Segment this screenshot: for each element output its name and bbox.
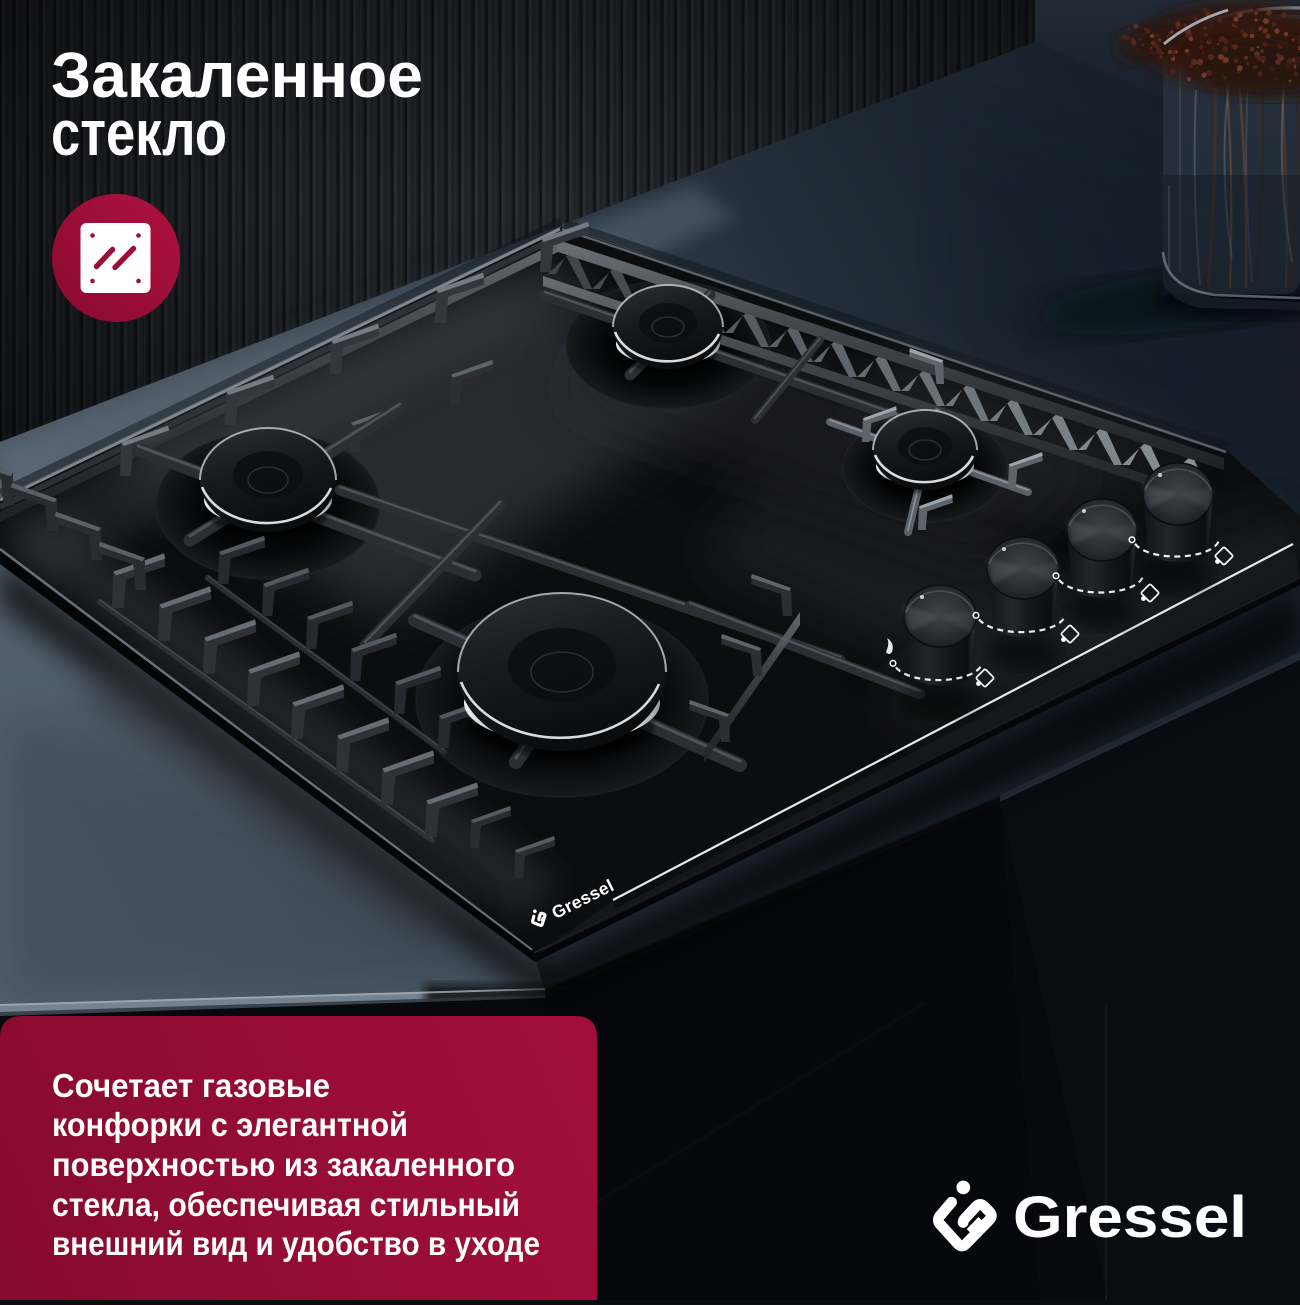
svg-text:конфорки с элегантной: конфорки с элегантной	[52, 1107, 408, 1144]
svg-text:стекло: стекло	[51, 97, 227, 169]
svg-text:Сочетает газовые: Сочетает газовые	[52, 1068, 330, 1105]
svg-text:внешний вид и удобство в уходе: внешний вид и удобство в уходе	[52, 1226, 540, 1263]
svg-text:стекла, обеспечивая стильный: стекла, обеспечивая стильный	[52, 1187, 520, 1224]
svg-text:Gressel: Gressel	[1013, 1185, 1247, 1250]
svg-text:поверхностью из закаленного: поверхностью из закаленного	[52, 1147, 515, 1184]
